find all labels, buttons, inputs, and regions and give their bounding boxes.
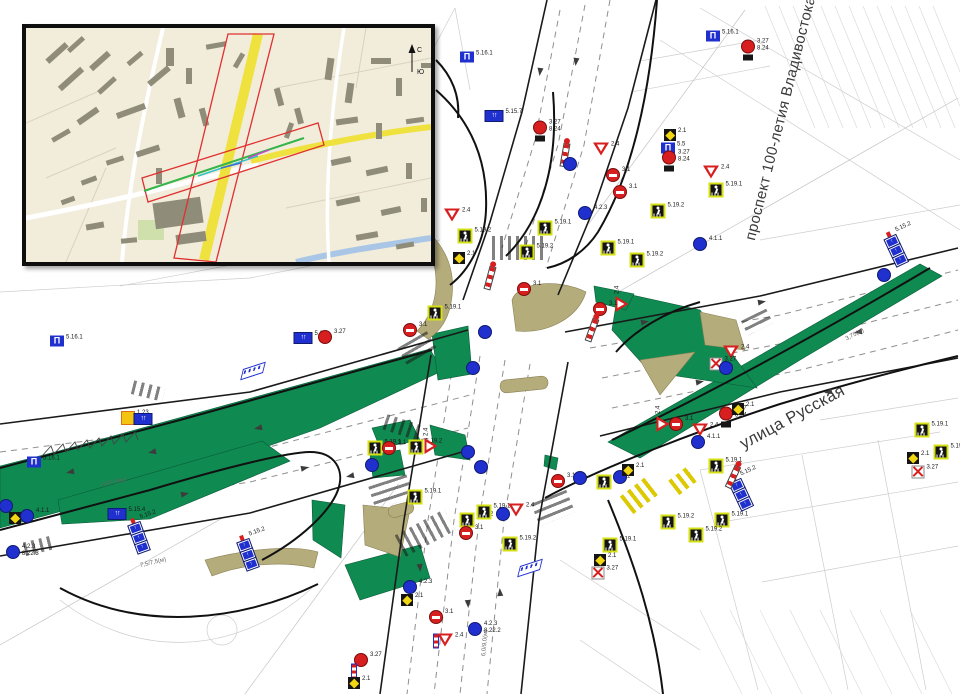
- mandatory-direction-sign: [478, 325, 492, 339]
- sign-code-label: 5.16.1: [722, 30, 739, 36]
- pedestrian-crossing-sign: 5.19.2: [409, 440, 424, 455]
- give-way-sign: 2.4: [508, 504, 524, 517]
- no-stopping-sign-icon: [741, 40, 755, 54]
- priority-road-sign: 2.1: [453, 252, 465, 264]
- mandatory-direction-sign: 4.2.38.22.3: [6, 545, 20, 559]
- sign-code-label: 2.4: [424, 428, 430, 436]
- priority-road-sign-icon: [401, 594, 413, 606]
- no-entry-sign: 3.1: [669, 417, 683, 431]
- pedestrian-crossing-sign-icon: [458, 229, 473, 244]
- sign-code-label: 3.1: [533, 281, 541, 287]
- lane-direction-board-icon: ↑↑: [134, 413, 153, 425]
- sign-code-label: 3.27: [334, 329, 346, 335]
- sign-plate-label: 8.22.2: [484, 628, 501, 634]
- no-entry-sign: 3.1: [613, 185, 627, 199]
- mandatory-direction-sign-icon: [365, 458, 379, 472]
- mandatory-direction-sign-icon: [719, 361, 733, 375]
- give-way-sign: 2.4: [593, 143, 609, 156]
- lane-arrow-marking: [417, 564, 424, 573]
- pedestrian-crossing-sign: 5.19.1: [477, 505, 492, 520]
- sign-code-label: 2.1: [467, 251, 475, 257]
- priority-road-sign: 2.1: [907, 452, 919, 464]
- mandatory-direction-sign-icon: [573, 471, 587, 485]
- priority-road-sign: 2.1: [594, 554, 606, 566]
- sign-code-label: 3.1: [609, 301, 617, 307]
- priority-road-sign: 2.1: [348, 677, 360, 689]
- no-entry-sign-icon: [613, 185, 627, 199]
- mandatory-direction-sign: [0, 499, 13, 513]
- mandatory-direction-sign: [496, 507, 510, 521]
- pedestrian-crossing-sign: 5.19.1: [368, 441, 383, 456]
- pedestrian-crossing-sign: 5.19.2: [934, 445, 949, 460]
- bus-stop-sign-icon: П: [460, 52, 474, 63]
- pedestrian-crossing-sign-icon: [915, 423, 930, 438]
- pedestrian-crossing-sign-icon: [715, 513, 730, 528]
- mandatory-direction-sign-icon: [0, 499, 13, 513]
- mandatory-direction-sign-icon: [877, 268, 891, 282]
- mandatory-direction-sign-icon: [403, 580, 417, 594]
- sign-code-label: 5.19.1: [726, 182, 743, 188]
- pedestrian-crossing-sign-icon: [603, 538, 618, 553]
- traffic-plan-page: С Ю проспект 100-летия Владивостока улиц…: [0, 0, 960, 694]
- pedestrian-crossing-sign: 5.19.2: [458, 229, 473, 244]
- sign-code-label: 3.1: [419, 322, 427, 328]
- sign-code-label: 4.2.3: [22, 544, 35, 550]
- sign-code-label: 2.4: [526, 503, 534, 509]
- sign-code-label: 5.19.2: [537, 244, 554, 250]
- pedestrian-crossing-sign: 5.19.1: [538, 221, 553, 236]
- sign-code-label: 3.27: [370, 652, 382, 658]
- mandatory-direction-sign: [877, 268, 891, 282]
- pedestrian-crossing-sign-icon: [651, 204, 666, 219]
- mandatory-direction-sign: [461, 445, 475, 459]
- sign-plate: [721, 422, 731, 428]
- mandatory-direction-sign-icon: [6, 545, 20, 559]
- no-entry-sign-icon: [551, 474, 565, 488]
- sign-code-label: 2.1: [362, 676, 370, 682]
- sign-code-label: 2.4: [611, 142, 619, 148]
- sign-code-label: 2.4: [710, 423, 718, 429]
- give-way-sign-icon: [616, 296, 629, 312]
- pedestrian-crossing-sign-icon: [477, 505, 492, 520]
- pedestrian-crossing-sign: 5.19.2: [503, 537, 518, 552]
- no-entry-sign-icon: [459, 526, 473, 540]
- sign-plate-label: 8.22.3: [22, 551, 39, 557]
- sign-code-label: 4.2.3: [484, 621, 497, 627]
- sign-code-label: 3.1: [685, 416, 693, 422]
- no-entry-sign-icon: [517, 282, 531, 296]
- give-way-sign: 2.4: [616, 296, 629, 312]
- no-stopping-x-sign-icon: [592, 567, 605, 580]
- mandatory-direction-sign: 4.2.38.22.2: [468, 622, 482, 636]
- mandatory-direction-sign: [466, 361, 480, 375]
- pedestrian-crossing-sign-icon: [601, 241, 616, 256]
- sign-plate-label: 8.24: [678, 157, 690, 163]
- mandatory-direction-sign-icon: [563, 157, 577, 171]
- lane-direction-board: ↑↑5.15.7: [485, 110, 504, 122]
- no-stopping-sign: 3.278.24: [719, 407, 733, 428]
- sign-code-label: 5.19.2: [475, 228, 492, 234]
- lane-arrow-marking: [537, 68, 544, 77]
- sign-code-label: 2.4: [455, 633, 463, 639]
- no-entry-sign-icon: [429, 610, 443, 624]
- pedestrian-crossing-sign-icon: [520, 245, 535, 260]
- mandatory-direction-sign: 4.2.3: [578, 206, 592, 220]
- priority-road-sign-icon: [907, 452, 919, 464]
- sign-plate-label: 8.24: [757, 46, 769, 52]
- sign-code-label: 4.1.1: [707, 434, 720, 440]
- give-way-sign: 2.4: [444, 209, 460, 222]
- pedestrian-crossing-sign-icon: [934, 445, 949, 460]
- priority-road-sign: 2.1: [732, 403, 744, 415]
- pedestrian-crossing-sign: 5.19.1: [428, 306, 443, 321]
- no-entry-sign: 3.1: [459, 526, 473, 540]
- sign-code-label: 5.19.1: [425, 489, 442, 495]
- pedestrian-crossing-sign: 5.19.1: [915, 423, 930, 438]
- bus-stop-sign-icon: П: [706, 31, 720, 42]
- sign-code-label: 5.19.2: [951, 444, 960, 450]
- pedestrian-crossing-sign-icon: [503, 537, 518, 552]
- mandatory-direction-sign-icon: [478, 325, 492, 339]
- pedestrian-crossing-sign: 5.19.2: [689, 528, 704, 543]
- bus-stop-sign-icon: П: [27, 457, 41, 468]
- no-entry-sign: 3.1: [403, 323, 417, 337]
- sign-code-label: 5.19.1: [555, 220, 572, 226]
- pedestrian-crossing-sign: 5.19.2: [630, 253, 645, 268]
- sign-code-label: 2.1: [608, 553, 616, 559]
- give-way-sign-icon: [508, 504, 524, 517]
- mandatory-direction-sign-icon: [693, 237, 707, 251]
- sign-code-label: 5.19.1: [932, 422, 949, 428]
- no-stopping-sign: 3.278.24: [662, 151, 676, 172]
- mandatory-direction-sign-icon: [461, 445, 475, 459]
- lane-direction-board: ↑↑: [134, 413, 153, 425]
- give-way-sign: 2.4: [657, 416, 670, 432]
- pedestrian-crossing-sign-icon: [661, 515, 676, 530]
- mandatory-direction-sign: 4.1.1: [691, 435, 705, 449]
- pedestrian-crossing-sign-icon: [709, 459, 724, 474]
- mandatory-direction-sign: [365, 458, 379, 472]
- sign-code-label: 5.19.1: [445, 305, 462, 311]
- sign-code-label: 5.19.1: [620, 537, 637, 543]
- sign-code-label: 3.27: [927, 465, 939, 471]
- no-entry-sign-icon: [403, 323, 417, 337]
- no-entry-sign-icon: [606, 168, 620, 182]
- sign-code-label: 4.2.3: [594, 205, 607, 211]
- sign-code-label: 5.19.1: [618, 240, 635, 246]
- mandatory-direction-sign-icon: [496, 507, 510, 521]
- sign-code-label: 5.19.2: [647, 252, 664, 258]
- lane-direction-board: ↑↑5.16: [294, 332, 313, 344]
- sign-code-label: 2.4: [615, 286, 621, 294]
- give-way-sign: 2.4: [437, 634, 453, 647]
- compass-south-label: Ю: [417, 69, 424, 76]
- no-stopping-sign-icon: [318, 330, 332, 344]
- sign-plate: [664, 166, 674, 172]
- sign-plate-label: 8.24: [549, 127, 561, 133]
- sign-code-label: 3.27: [607, 566, 619, 572]
- lane-direction-board: ↑↑5.15.4: [108, 508, 127, 520]
- mandatory-direction-sign-icon: [466, 361, 480, 375]
- sign-code-label: 5.19.2: [520, 536, 537, 542]
- pedestrian-crossing-sign: 5.19.1: [709, 183, 724, 198]
- priority-road-sign-icon: [622, 464, 634, 476]
- sign-code-label: 4.2.3: [419, 579, 432, 585]
- mandatory-direction-sign: [563, 157, 577, 171]
- sign-code-label: 5.19.2: [706, 527, 723, 533]
- mandatory-direction-sign: 4.1.1: [693, 237, 707, 251]
- priority-road-sign-icon: [664, 129, 676, 141]
- lane-arrow-marking: [465, 600, 472, 608]
- sign-code-label: 4.1.1: [36, 508, 49, 514]
- pedestrian-crossing-sign-icon: [689, 528, 704, 543]
- no-entry-sign-icon: [669, 417, 683, 431]
- give-way-sign-icon: [425, 438, 438, 454]
- pedestrian-crossing-sign: 5.19.1: [715, 513, 730, 528]
- bus-stop-sign: П5.16.1: [50, 336, 64, 347]
- sign-code-label: 3.1: [622, 167, 630, 173]
- pedestrian-crossing-sign: 5.19.1: [603, 538, 618, 553]
- lane-arrow-marking: [573, 58, 580, 67]
- pedestrian-crossing-sign: 5.19.2: [651, 204, 666, 219]
- sign-code-label: 2.1: [415, 593, 423, 599]
- sign-code-label: 5.16.1: [476, 51, 493, 57]
- sign-code-label: 5.16.1: [43, 456, 60, 462]
- sign-plate: [743, 55, 753, 61]
- pedestrian-crossing-sign: 5.19.1: [709, 459, 724, 474]
- priority-road-sign: 2.1: [622, 464, 634, 476]
- mandatory-direction-sign: [573, 471, 587, 485]
- no-stopping-sign-icon: [662, 151, 676, 165]
- sign-code-label: 3.1: [445, 609, 453, 615]
- give-way-sign-icon: [437, 634, 453, 647]
- sign-code-label: 2.1: [746, 402, 754, 408]
- pedestrian-crossing-sign-icon: [630, 253, 645, 268]
- sign-code-label: 2.4: [462, 208, 470, 214]
- bus-stop-sign: П5.16.1: [27, 457, 41, 468]
- give-way-sign: 2.4: [703, 166, 719, 179]
- lane-direction-board-icon: ↑↑: [485, 110, 504, 122]
- compass-north-label: С: [417, 47, 422, 54]
- pedestrian-crossing-sign-icon: [709, 183, 724, 198]
- sign-code-label: 3.27: [757, 39, 769, 45]
- priority-road-sign-icon: [594, 554, 606, 566]
- priority-road-sign: 2.1: [664, 129, 676, 141]
- mandatory-direction-sign-icon: [20, 509, 34, 523]
- pedestrian-crossing-sign: 5.19.2: [520, 245, 535, 260]
- mandatory-direction-sign-icon: [474, 460, 488, 474]
- pedestrian-crossing-sign-icon: [538, 221, 553, 236]
- mandatory-direction-sign: [474, 460, 488, 474]
- sign-code-label: 5.19.2: [678, 514, 695, 520]
- bus-stop-sign: П5.16.1: [706, 31, 720, 42]
- priority-road-sign-icon: [453, 252, 465, 264]
- sign-code-label: 2.1: [921, 451, 929, 457]
- lane-arrow-marking: [497, 588, 504, 596]
- pedestrian-crossing-sign-icon: [409, 440, 424, 455]
- give-way-sign-icon: [703, 166, 719, 179]
- sign-code-label: 2.1: [636, 463, 644, 469]
- no-stopping-sign: 3.278.24: [533, 121, 547, 142]
- pedestrian-crossing-sign-icon: [428, 306, 443, 321]
- inset-location-map: С Ю: [22, 24, 435, 266]
- no-stopping-sign-icon: [719, 407, 733, 421]
- sign-code-label: 5.15.4: [129, 507, 146, 513]
- sign-code-label: 5.5: [677, 142, 685, 148]
- no-entry-sign: 3.1: [517, 282, 531, 296]
- no-stopping-sign: 3.27: [318, 330, 332, 344]
- priority-road-sign-icon: [732, 403, 744, 415]
- pedestrian-crossing-sign-icon: [597, 475, 612, 490]
- give-way-sign-icon: [444, 209, 460, 222]
- give-way-sign-icon: [593, 143, 609, 156]
- no-stopping-sign-icon: [533, 121, 547, 135]
- no-stopping-x-sign: 3.27: [912, 466, 925, 479]
- pedestrian-crossing-sign: 5.19.1: [601, 241, 616, 256]
- sign-code-label: 5.15.7: [506, 109, 523, 115]
- bus-stop-sign-icon: П: [50, 336, 64, 347]
- sign-code-label: 4.1.1: [709, 236, 722, 242]
- mandatory-direction-sign: [719, 361, 733, 375]
- no-stopping-sign: 3.278.24: [741, 40, 755, 61]
- sign-code-label: 3.1: [629, 184, 637, 190]
- sign-plate: [535, 136, 545, 142]
- lane-direction-board-icon: ↑↑: [294, 332, 313, 344]
- sign-code-label: 3.27: [678, 150, 690, 156]
- pedestrian-crossing-sign: 5.19.2: [661, 515, 676, 530]
- no-stopping-x-sign-icon: [912, 466, 925, 479]
- no-entry-sign: 3.1: [606, 168, 620, 182]
- sign-code-label: 2.4: [721, 165, 729, 171]
- mandatory-direction-sign: 4.1.1: [20, 509, 34, 523]
- sign-code-label: 2.1: [678, 128, 686, 134]
- no-entry-sign: 3.1: [429, 610, 443, 624]
- no-stopping-x-sign: 3.27: [592, 567, 605, 580]
- sign-code-label: 3.1: [475, 525, 483, 531]
- pedestrian-crossing-sign-icon: [408, 490, 423, 505]
- sign-code-label: 3.1: [398, 440, 406, 446]
- mandatory-direction-sign: 4.2.3: [403, 580, 417, 594]
- sign-code-label: 5.19.1: [732, 512, 749, 518]
- pedestrian-crossing-sign-icon: [368, 441, 383, 456]
- sign-code-label: 5.19.2: [668, 203, 685, 209]
- sign-code-label: 3.27: [549, 120, 561, 126]
- pedestrian-crossing-sign: 5.19.1: [408, 490, 423, 505]
- mandatory-direction-sign-icon: [691, 435, 705, 449]
- mandatory-direction-sign-icon: [468, 622, 482, 636]
- mandatory-direction-sign-icon: [578, 206, 592, 220]
- pedestrian-crossing-sign: 5.19.1: [597, 475, 612, 490]
- no-entry-sign-icon: [382, 441, 396, 455]
- give-way-sign-icon: [657, 416, 670, 432]
- bus-stop-sign: П5.16.1: [460, 52, 474, 63]
- no-entry-sign: 3.1: [551, 474, 565, 488]
- lane-direction-board-icon: ↑↑: [108, 508, 127, 520]
- sign-code-label: 5.16.1: [66, 335, 83, 341]
- give-way-sign: 2.4: [425, 438, 438, 454]
- no-entry-sign: 3.1: [382, 441, 396, 455]
- priority-road-sign-icon: [348, 677, 360, 689]
- sign-code-label: 2.4: [741, 345, 749, 351]
- sign-code-label: 2.4: [656, 406, 662, 414]
- priority-road-sign: 2.1: [401, 594, 413, 606]
